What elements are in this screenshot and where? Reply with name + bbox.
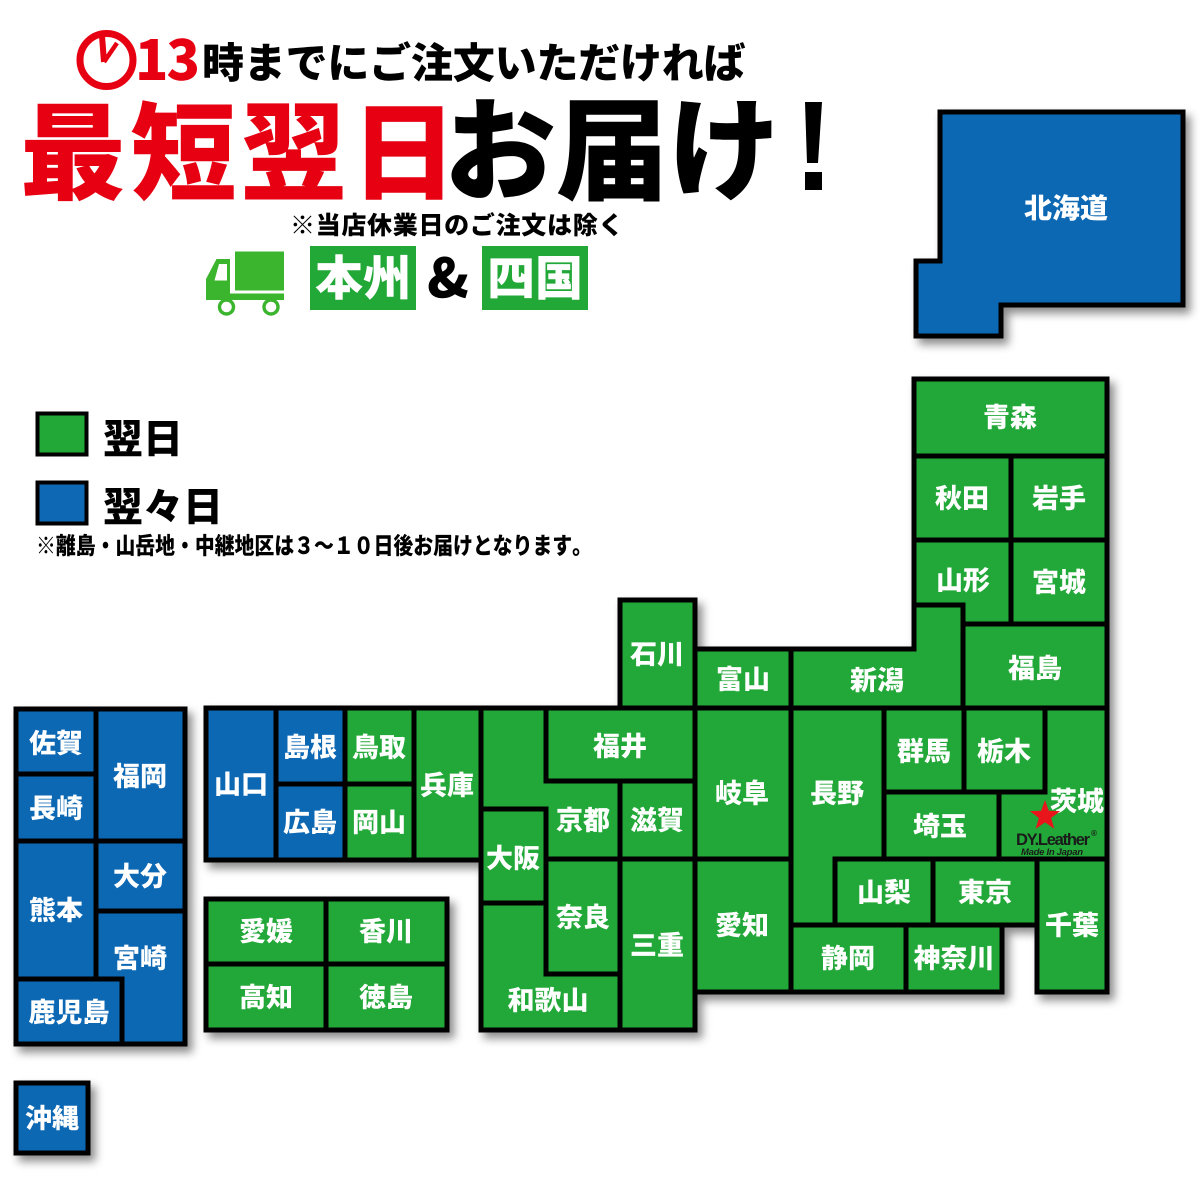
svg-text:®: ® xyxy=(1091,829,1097,838)
svg-text:Made In Japan: Made In Japan xyxy=(1021,847,1083,858)
